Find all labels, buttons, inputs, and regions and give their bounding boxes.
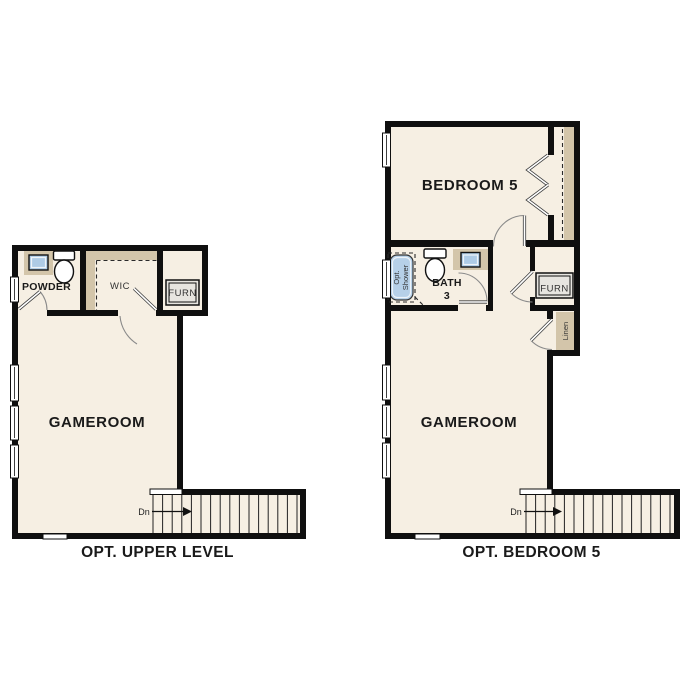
- linen-label: Linen: [561, 322, 570, 340]
- floorplan-canvas: Dn POWDER WIC FURN GAMEROOM OPT. UPPER L…: [0, 0, 687, 687]
- bedroom5-plan: Opt. Shower Linen: [383, 121, 681, 561]
- bath-vanity-sink: [453, 249, 488, 270]
- svg-text:Shower: Shower: [401, 264, 410, 290]
- bath3-label-line2: 3: [444, 290, 450, 302]
- powder-vanity-sink: [24, 251, 53, 275]
- stairs-dn-label-right: Dn: [510, 507, 522, 517]
- bedroom5-caption: OPT. BEDROOM 5: [462, 544, 600, 561]
- bedroom5-label: BEDROOM 5: [422, 177, 518, 194]
- svg-text:Opt.: Opt.: [392, 270, 401, 284]
- linen-closet: Linen: [556, 312, 574, 350]
- bath3-label-line1: BATH: [432, 277, 462, 289]
- gameroom-label-right: GAMEROOM: [421, 414, 517, 431]
- powder-toilet: [54, 251, 75, 283]
- gameroom-label: GAMEROOM: [49, 414, 145, 431]
- upper-level-plan: Dn POWDER WIC FURN GAMEROOM OPT. UPPER L…: [11, 245, 307, 561]
- powder-label: POWDER: [22, 281, 71, 293]
- stairs-dn-label: Dn: [138, 507, 150, 517]
- wic-label: WIC: [110, 281, 130, 292]
- floorplan-page: Dn POWDER WIC FURN GAMEROOM OPT. UPPER L…: [0, 0, 687, 687]
- furnace-label-right: FURN: [540, 284, 568, 295]
- stair-railing: [150, 489, 182, 495]
- furnace-label: FURN: [168, 288, 196, 299]
- upper-level-caption: OPT. UPPER LEVEL: [81, 544, 234, 561]
- stair-railing-right: [520, 489, 552, 495]
